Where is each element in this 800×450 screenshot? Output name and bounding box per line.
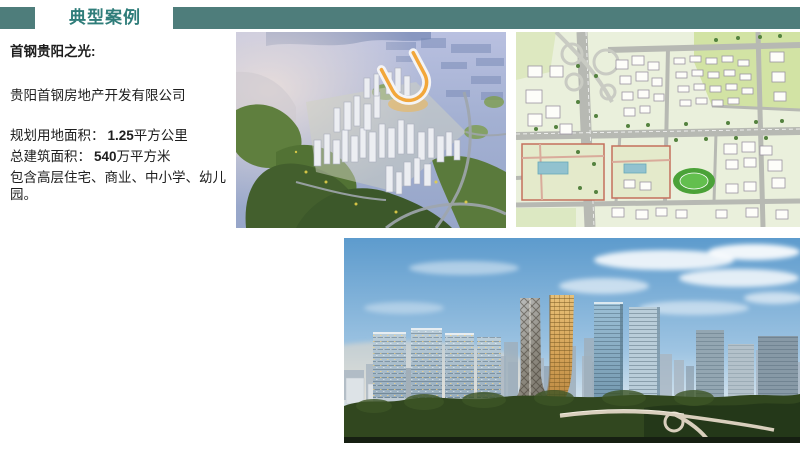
skyline-rendering-image bbox=[344, 238, 800, 443]
project-name: 首钢贵阳之光: bbox=[10, 43, 232, 60]
building-area-value: 540 bbox=[94, 149, 117, 164]
composition-line: 包含高层住宅、商业、中小学、幼儿园。 bbox=[10, 169, 232, 203]
company-name: 贵阳首钢房地产开发有限公司 bbox=[10, 87, 232, 104]
master-plan-image bbox=[516, 32, 800, 227]
header-accent-bar bbox=[173, 7, 800, 29]
figure-master-plan bbox=[516, 32, 800, 227]
running-track bbox=[673, 168, 715, 194]
land-area-line: 规划用地面积：1.25平方公里 bbox=[10, 127, 232, 144]
slide: 典型案例 首钢贵阳之光: 贵阳首钢房地产开发有限公司 规划用地面积：1.25平方… bbox=[0, 0, 800, 450]
header-accent-left-block bbox=[0, 7, 35, 29]
bottom-shadow bbox=[344, 437, 800, 443]
land-area-label: 规划用地面积： bbox=[10, 128, 105, 143]
aerial-rendering-image bbox=[236, 32, 506, 228]
building-area-label: 总建筑面积： bbox=[10, 149, 91, 164]
building-area-unit: 万平方米 bbox=[117, 149, 171, 164]
foreground-treeline bbox=[344, 390, 800, 443]
building-area-line: 总建筑面积：540万平方米 bbox=[10, 148, 232, 165]
info-panel: 首钢贵阳之光: 贵阳首钢房地产开发有限公司 规划用地面积：1.25平方公里 总建… bbox=[10, 43, 232, 203]
page-title: 典型案例 bbox=[55, 7, 155, 29]
figure-aerial-rendering bbox=[236, 32, 506, 228]
land-area-value: 1.25 bbox=[108, 128, 134, 143]
figure-skyline-rendering bbox=[344, 238, 800, 443]
land-area-unit: 平方公里 bbox=[134, 128, 188, 143]
